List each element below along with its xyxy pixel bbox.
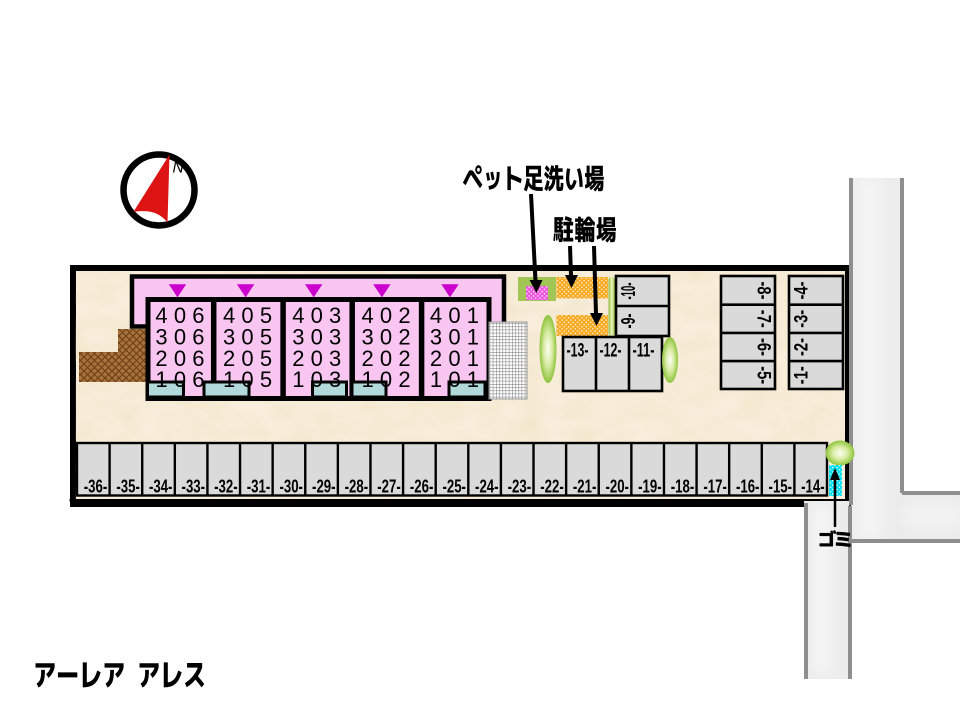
svg-text:-13-: -13- [567,341,589,362]
svg-text:-11-: -11- [633,341,655,362]
svg-text:-28-: -28- [345,476,369,497]
svg-text:-9-: -9- [617,314,640,329]
svg-text:103: 103 [292,367,347,392]
svg-text:-22-: -22- [540,476,564,497]
svg-text:-2-: -2- [792,338,813,356]
svg-text:-31-: -31- [247,476,271,497]
svg-text:-16-: -16- [736,476,760,497]
svg-text:-34-: -34- [149,476,173,497]
svg-text:106: 106 [155,367,210,392]
svg-text:-27-: -27- [377,476,401,497]
svg-text:-8-: -8- [753,282,774,300]
svg-text:-23-: -23- [508,476,532,497]
svg-text:-1-: -1- [792,366,813,384]
svg-text:-26-: -26- [410,476,434,497]
svg-text:-14-: -14- [801,476,825,497]
svg-text:-12-: -12- [600,341,622,362]
svg-text:-29-: -29- [312,476,336,497]
svg-text:N: N [173,160,185,177]
svg-text:-7-: -7- [753,310,774,328]
svg-text:-36-: -36- [84,476,108,497]
svg-text:-32-: -32- [214,476,238,497]
svg-text:-30-: -30- [279,476,303,497]
svg-text:-33-: -33- [182,476,206,497]
svg-text:-20-: -20- [605,476,629,497]
svg-text:-35-: -35- [116,476,140,497]
svg-text:101: 101 [430,367,485,392]
svg-text:-5-: -5- [753,366,774,384]
svg-text:-21-: -21- [573,476,597,497]
svg-text:-17-: -17- [703,476,727,497]
svg-text:-18-: -18- [671,476,695,497]
svg-text:-10-: -10- [617,283,640,300]
svg-text:-25-: -25- [442,476,466,497]
svg-text:-4-: -4- [792,282,813,300]
svg-text:102: 102 [362,367,417,392]
svg-text:-24-: -24- [475,476,499,497]
svg-text:105: 105 [223,367,278,392]
svg-text:-15-: -15- [769,476,793,497]
svg-text:-6-: -6- [753,338,774,356]
svg-text:-19-: -19- [638,476,662,497]
svg-text:-3-: -3- [792,310,813,328]
